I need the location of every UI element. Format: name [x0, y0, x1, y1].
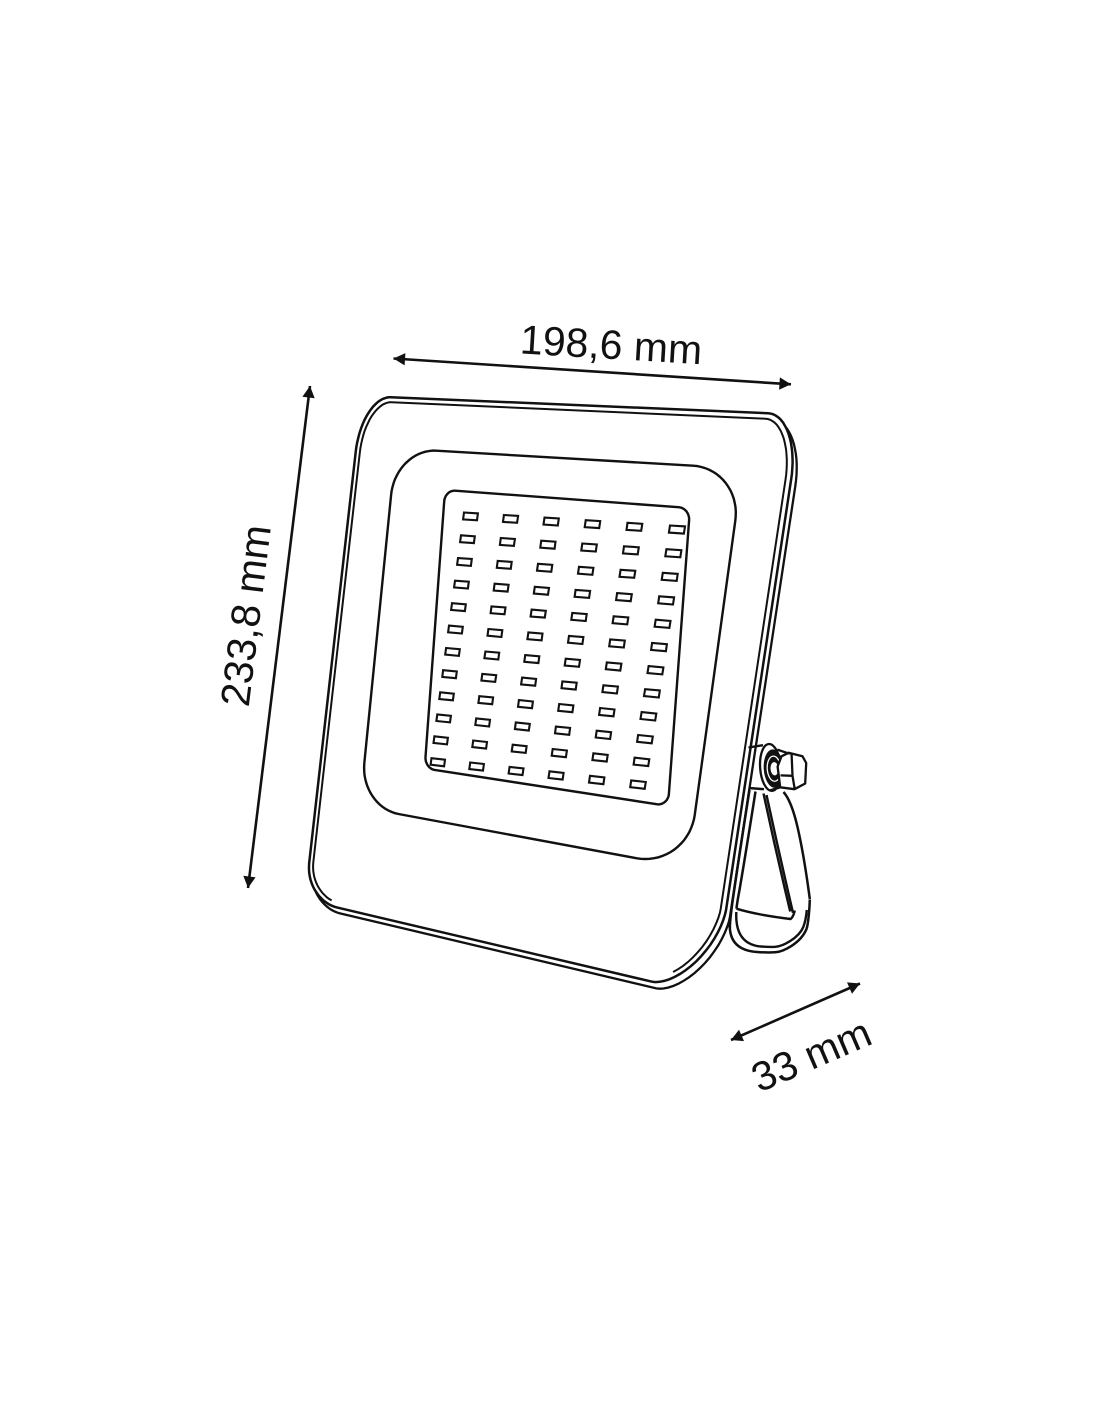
- svg-text:198,6 mm: 198,6 mm: [519, 316, 704, 373]
- svg-text:33 mm: 33 mm: [745, 1009, 878, 1101]
- svg-text:233,8 mm: 233,8 mm: [212, 522, 280, 709]
